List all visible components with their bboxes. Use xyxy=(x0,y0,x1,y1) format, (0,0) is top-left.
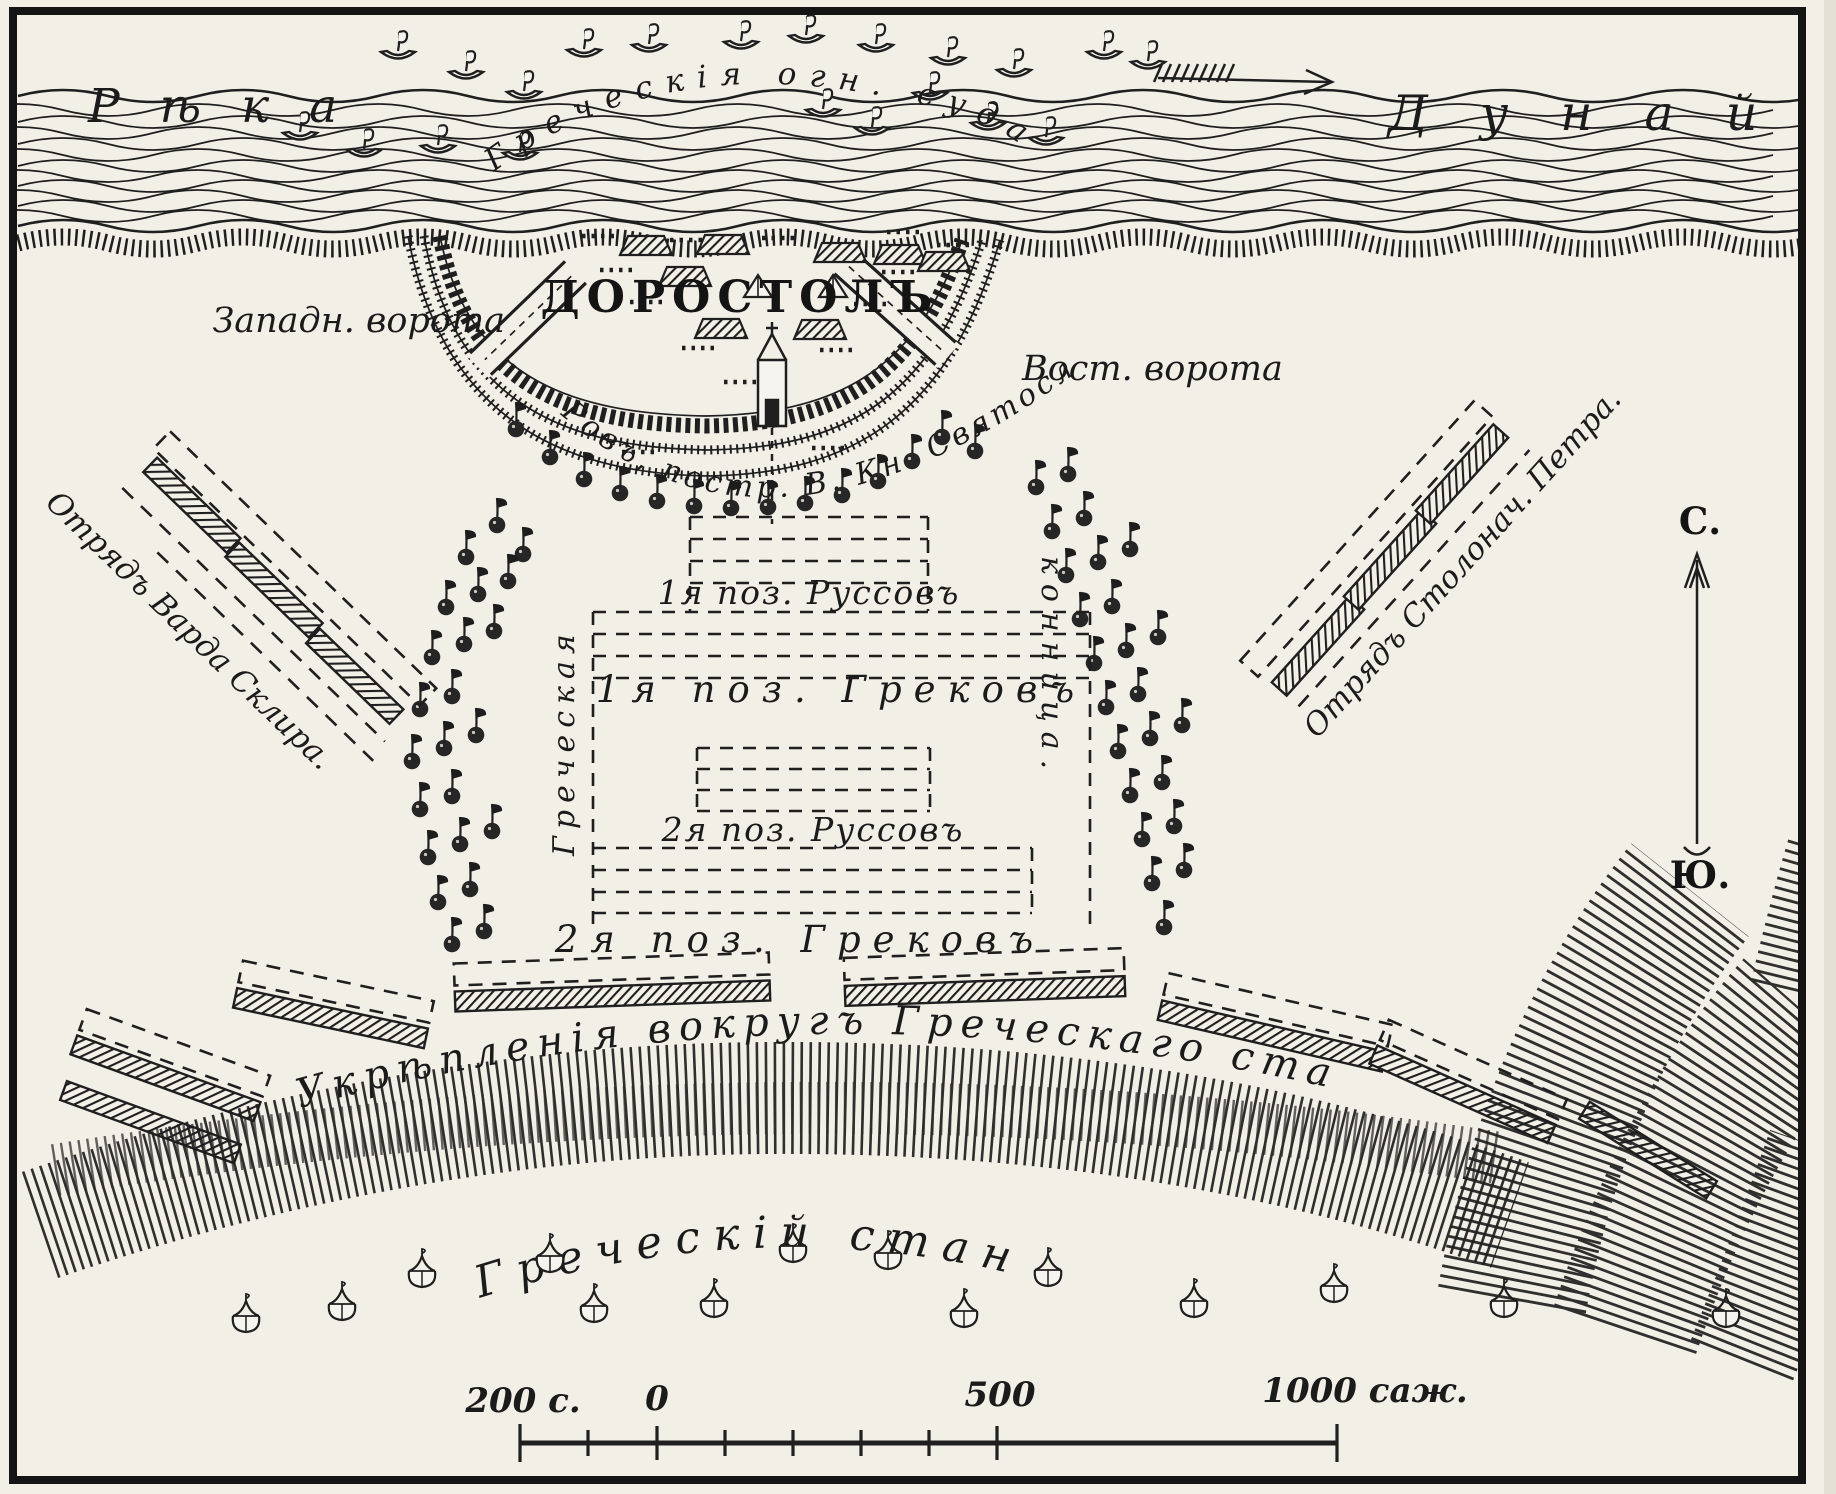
detachment-right-label: Отрядъ Столонач. Петра. xyxy=(1296,382,1628,745)
city-name-label: ДОРОСТОЛЪ xyxy=(541,272,940,323)
cavalry-label-left: Греческая xyxy=(547,627,582,857)
scanned-map-page: Рѣка Дунай Греческія огн. суда xyxy=(0,0,1836,1494)
river-name-left: Рѣка xyxy=(87,79,377,134)
greek-position-1-label: 1я поз. Грековъ xyxy=(596,668,1086,711)
scale-label-200: 200 с. xyxy=(464,1381,580,1421)
river-name-right: Дунай xyxy=(1386,85,1809,142)
compass-south-label: Ю. xyxy=(1670,853,1731,897)
river-flow-arrow-icon xyxy=(1154,64,1332,94)
rus-position-1-label: 1я поз. Руссовъ xyxy=(658,573,961,612)
compass-north-arrow-icon xyxy=(1684,554,1710,855)
scale-bar: 200 с. 0 500 1000 саж. xyxy=(464,1371,1467,1462)
detachment-left-label: Отрядъ Варда Склира. xyxy=(39,484,341,777)
church-icon xyxy=(758,322,786,426)
scale-label-500: 500 xyxy=(965,1375,1036,1415)
dorostol-battle-map: Рѣка Дунай Греческія огн. суда xyxy=(0,0,1836,1494)
page-edge-shade xyxy=(1824,0,1836,1494)
compass: С. Ю. xyxy=(1670,499,1731,897)
scale-label-1000: 1000 саж. xyxy=(1262,1371,1467,1411)
detachment-stolonach-peter: Отрядъ Столонач. Петра. xyxy=(1236,327,1629,745)
rus-position-2-label: 2я поз. Руссовъ xyxy=(661,810,965,849)
scale-label-0: 0 xyxy=(645,1379,669,1419)
ridge-hachure xyxy=(40,1098,1510,1225)
compass-north-label: С. xyxy=(1679,499,1721,543)
hill-slope-hachure xyxy=(1512,846,1828,1360)
detachment-bardas-skleros: Отрядъ Варда Склира. xyxy=(39,403,440,798)
greek-cavalry-left-wing xyxy=(404,498,533,952)
west-gate-label: Западн. ворота xyxy=(212,301,505,341)
